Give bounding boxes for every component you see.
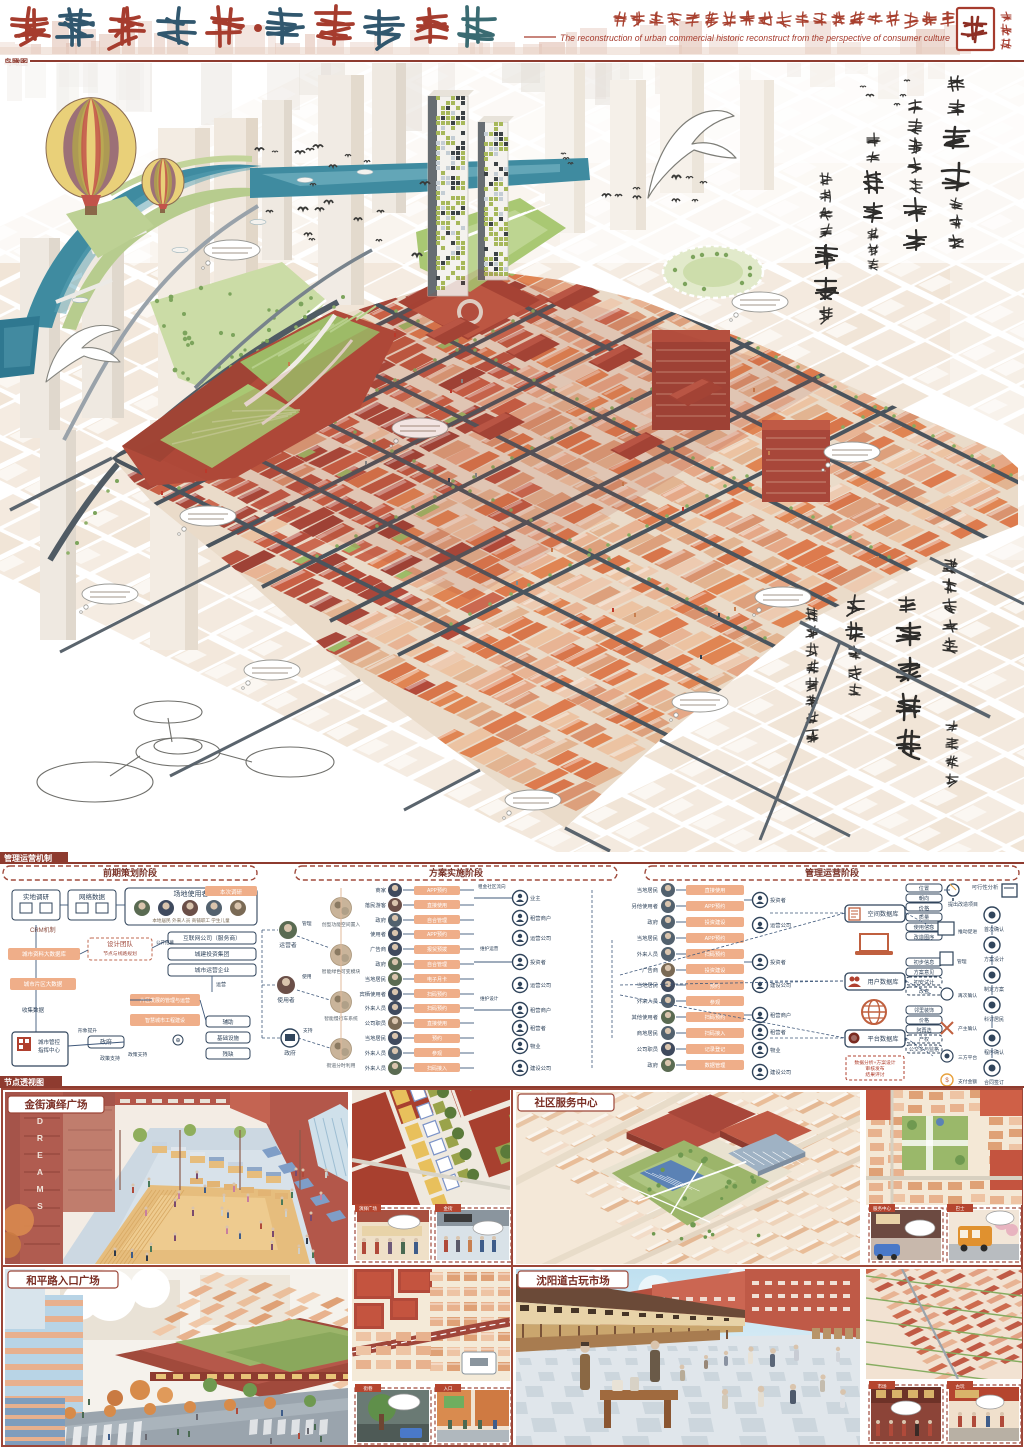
svg-text:产主确认: 产主确认 (958, 1025, 977, 1032)
svg-text:自合管理: 自合管理 (427, 961, 447, 968)
svg-text:运营者: 运营者 (279, 941, 297, 949)
svg-text:本地居民 外来人员 商铺职工 学生儿童: 本地居民 外来人员 商铺职工 学生儿童 (152, 917, 230, 924)
svg-text:街巷: 街巷 (364, 1385, 373, 1392)
svg-text:运营公司: 运营公司 (530, 934, 551, 942)
svg-text:产权: 产权 (919, 1036, 929, 1043)
svg-text:位置: 位置 (919, 884, 929, 892)
svg-text:业主: 业主 (530, 894, 541, 902)
svg-text:直接使用: 直接使用 (427, 902, 447, 909)
svg-text:另他使用者: 另他使用者 (632, 902, 659, 910)
svg-text:使用: 使用 (302, 973, 312, 980)
svg-text:古玩: 古玩 (956, 1383, 965, 1390)
svg-text:自合管理: 自合管理 (427, 917, 447, 924)
svg-text:当地居民: 当地居民 (365, 1034, 386, 1042)
svg-text:建设公司: 建设公司 (530, 1064, 551, 1072)
svg-text:公开招募: 公开招募 (156, 939, 174, 946)
svg-text:收集数据: 收集数据 (22, 1006, 45, 1014)
svg-text:初安试计: 初安试计 (914, 978, 935, 986)
svg-text:当地居民: 当地居民 (637, 934, 658, 942)
svg-text:参观: 参观 (710, 998, 721, 1006)
svg-text:R: R (37, 1133, 43, 1143)
svg-text:宾栖使用者: 宾栖使用者 (360, 990, 387, 998)
svg-text:运营公司: 运营公司 (770, 921, 791, 929)
svg-text:外来人员: 外来人员 (365, 1049, 386, 1057)
svg-text:初步信息: 初步信息 (914, 958, 935, 966)
svg-text:形象提升: 形象提升 (78, 1027, 97, 1034)
svg-text:APP预约: APP预约 (705, 902, 726, 910)
svg-text:预约: 预约 (432, 1035, 442, 1042)
svg-text:外来人员: 外来人员 (637, 997, 658, 1005)
svg-text:扫码预约: 扫码预约 (427, 991, 447, 998)
svg-text:片区发展的管理与运营: 片区发展的管理与运营 (140, 997, 190, 1004)
svg-text:外来人员: 外来人员 (637, 950, 658, 958)
svg-text:外来人员: 外来人员 (365, 1004, 386, 1012)
svg-text:方案设计: 方案设计 (984, 956, 1004, 963)
svg-text:管理: 管理 (302, 920, 312, 927)
svg-text:政府: 政府 (284, 1049, 296, 1057)
svg-text:沈阳道古玩市场: 沈阳道古玩市场 (536, 1274, 610, 1287)
svg-text:直接使用: 直接使用 (427, 1020, 447, 1027)
svg-text:使用者: 使用者 (370, 930, 386, 938)
svg-text:The reconstruction of urban co: The reconstruction of urban commercial h… (560, 33, 950, 44)
svg-text:再次确认: 再次确认 (958, 992, 977, 999)
svg-text:维护运营: 维护运营 (480, 945, 499, 952)
svg-text:城建投资集团: 城建投资集团 (195, 950, 230, 958)
svg-text:投资建设: 投资建设 (705, 966, 726, 974)
svg-text:租金社区流向: 租金社区流向 (478, 883, 506, 890)
svg-text:支持: 支持 (303, 1027, 313, 1034)
svg-text:平台数据库: 平台数据库 (868, 1035, 899, 1043)
svg-text:社区服务中心: 社区服务中心 (534, 1096, 598, 1109)
svg-text:城市片区大数据: 城市片区大数据 (24, 980, 63, 988)
svg-text:街道分时利用: 街道分时利用 (327, 1062, 356, 1069)
svg-text:辅助: 辅助 (222, 1018, 234, 1026)
svg-text:S: S (37, 1201, 43, 1211)
svg-text:智慧城市工程建设: 智慧城市工程建设 (145, 1017, 185, 1024)
svg-text:指挥中心: 指挥中心 (38, 1046, 61, 1054)
svg-text:方案意见: 方案意见 (914, 968, 935, 976)
svg-text:管理运营阶段: 管理运营阶段 (805, 867, 860, 878)
svg-text:租营者: 租营者 (770, 1028, 786, 1036)
svg-text:扫码接入: 扫码接入 (427, 1065, 447, 1072)
svg-text:首次确认: 首次确认 (984, 926, 1004, 933)
svg-text:运营公司: 运营公司 (530, 981, 551, 989)
svg-text:节点与线路规划: 节点与线路规划 (103, 950, 137, 957)
svg-text:租营商户: 租营商户 (530, 914, 551, 922)
svg-text:审核发布: 审核发布 (865, 1065, 884, 1072)
svg-text:推动促进: 推动促进 (958, 928, 977, 935)
svg-text:朝向: 朝向 (919, 894, 929, 902)
svg-text:使用者: 使用者 (277, 996, 295, 1004)
svg-text:用户数据库: 用户数据库 (868, 978, 899, 986)
svg-text:电子月卡: 电子月卡 (427, 976, 447, 983)
svg-text:制定方案: 制定方案 (984, 986, 1004, 993)
svg-text:投资者: 投资者 (770, 958, 786, 966)
svg-text:APP预约: APP预约 (705, 934, 726, 942)
svg-text:A: A (37, 1167, 43, 1177)
svg-text:网络数据: 网络数据 (79, 892, 106, 901)
svg-text:APP预约: APP预约 (427, 887, 447, 894)
svg-text:商地居民: 商地居民 (637, 1029, 658, 1037)
svg-text:节点透视图: 节点透视图 (4, 1077, 44, 1087)
svg-text:其他使用者: 其他使用者 (632, 1013, 659, 1021)
svg-text:可行性分析: 可行性分析 (972, 883, 999, 891)
svg-text:数据管理: 数据管理 (705, 1061, 727, 1069)
svg-text:物业: 物业 (770, 1046, 781, 1054)
svg-text:落民游客: 落民游客 (365, 901, 387, 909)
svg-text:城市资料大数据库: 城市资料大数据库 (22, 950, 67, 958)
svg-text:价格: 价格 (919, 1017, 929, 1024)
svg-text:市场: 市场 (878, 1383, 887, 1390)
svg-text:公交多与监格: 公交多与监格 (909, 1046, 939, 1053)
svg-text:方案实施阶段: 方案实施阶段 (429, 867, 484, 878)
svg-text:政府: 政府 (375, 960, 386, 968)
svg-text:投资者: 投资者 (530, 958, 546, 966)
svg-text:金街演绎广场: 金街演绎广场 (24, 1098, 88, 1111)
svg-text:政策支持: 政策支持 (128, 1051, 147, 1058)
svg-text:扫码预约: 扫码预约 (705, 1013, 726, 1021)
svg-text:巴士: 巴士 (956, 1205, 965, 1211)
svg-text:改造图序: 改造图序 (914, 933, 935, 941)
svg-text:扫码接入: 扫码接入 (705, 1029, 726, 1037)
svg-text:和平路入口广场: 和平路入口广场 (25, 1274, 100, 1287)
svg-text:演绎广场: 演绎广场 (359, 1205, 377, 1212)
svg-text:科讨居民: 科讨居民 (984, 1016, 1004, 1023)
svg-text:CRM机制: CRM机制 (30, 926, 56, 934)
svg-text:广告商: 广告商 (370, 945, 386, 953)
svg-text:当地居民: 当地居民 (637, 981, 658, 989)
svg-text:基础设施: 基础设施 (217, 1034, 240, 1042)
svg-text:管理运营机制: 管理运营机制 (4, 853, 52, 863)
svg-text:维护设计: 维护设计 (480, 995, 499, 1002)
svg-text:空间数据库: 空间数据库 (868, 910, 899, 918)
svg-text:城市管控: 城市管控 (38, 1038, 61, 1046)
svg-text:广告商: 广告商 (642, 966, 658, 974)
svg-text:邻里装饰: 邻里装饰 (914, 1007, 934, 1014)
svg-text:当地居民: 当地居民 (637, 886, 658, 894)
svg-text:E: E (37, 1150, 43, 1160)
svg-text:场地使用者: 场地使用者 (174, 889, 209, 898)
svg-text:租营商户: 租营商户 (770, 1011, 791, 1019)
svg-text:质量: 质量 (919, 913, 929, 921)
svg-text:公司职员: 公司职员 (365, 1020, 386, 1027)
svg-text:⊕: ⊕ (175, 1038, 180, 1044)
svg-text:数据分析+方案设计: 数据分析+方案设计 (854, 1059, 895, 1066)
svg-text:前期策划阶段: 前期策划阶段 (103, 867, 158, 878)
svg-text:物业: 物业 (530, 1042, 541, 1050)
svg-text:记录登记: 记录登记 (705, 1045, 726, 1053)
svg-text:政策支持: 政策支持 (100, 1055, 120, 1062)
svg-text:商家: 商家 (375, 886, 386, 894)
svg-text:金街: 金街 (444, 1205, 453, 1212)
svg-text:程序确认: 程序确认 (984, 1049, 1004, 1056)
svg-text:城市运营企业: 城市运营企业 (195, 966, 230, 974)
svg-text:政府: 政府 (647, 1061, 658, 1069)
svg-text:使用信息: 使用信息 (914, 923, 935, 931)
svg-text:投资建设: 投资建设 (705, 918, 726, 926)
svg-text:提出改造项目: 提出改造项目 (948, 901, 978, 908)
svg-text:扫码预约: 扫码预约 (427, 1005, 447, 1012)
svg-text:管理: 管理 (957, 958, 967, 965)
svg-text:互联网公司（服务商）: 互联网公司（服务商） (183, 934, 241, 942)
svg-text:公司职员: 公司职员 (637, 1046, 658, 1053)
svg-text:M: M (36, 1184, 43, 1194)
svg-text:合同签订: 合同签订 (984, 1079, 1004, 1086)
svg-text:当地居民: 当地居民 (365, 975, 386, 983)
svg-text:服务中心: 服务中心 (873, 1205, 891, 1212)
svg-text:报贸预拨: 报贸预拨 (427, 946, 447, 953)
svg-text:实地调研: 实地调研 (23, 892, 50, 901)
svg-text:APP预约: APP预约 (427, 931, 447, 938)
svg-text:建设公司: 建设公司 (770, 1068, 791, 1076)
svg-text:投资者: 投资者 (770, 896, 786, 904)
svg-text:直接使用: 直接使用 (705, 886, 726, 894)
svg-text:阿再选: 阿再选 (916, 1027, 931, 1034)
svg-text:参观: 参观 (432, 1050, 442, 1057)
svg-text:政府: 政府 (100, 1038, 112, 1046)
svg-text:租营商户: 租营商户 (530, 1006, 551, 1014)
svg-text:设计团队: 设计团队 (107, 939, 134, 948)
svg-text:结果评讨: 结果评讨 (865, 1071, 884, 1078)
svg-text:D: D (37, 1116, 43, 1126)
svg-text:运营: 运营 (216, 981, 226, 988)
svg-text:本次调研: 本次调研 (220, 888, 243, 896)
svg-text:支付金额: 支付金额 (958, 1078, 977, 1085)
svg-text:价格: 价格 (919, 904, 930, 912)
svg-text:租营者: 租营者 (530, 1024, 546, 1032)
svg-text:政府: 政府 (647, 918, 658, 926)
svg-text:政府: 政府 (375, 916, 386, 924)
svg-text:外来人员: 外来人员 (365, 1064, 386, 1072)
svg-text:残缺: 残缺 (222, 1050, 234, 1058)
svg-text:三方平台: 三方平台 (958, 1054, 977, 1061)
